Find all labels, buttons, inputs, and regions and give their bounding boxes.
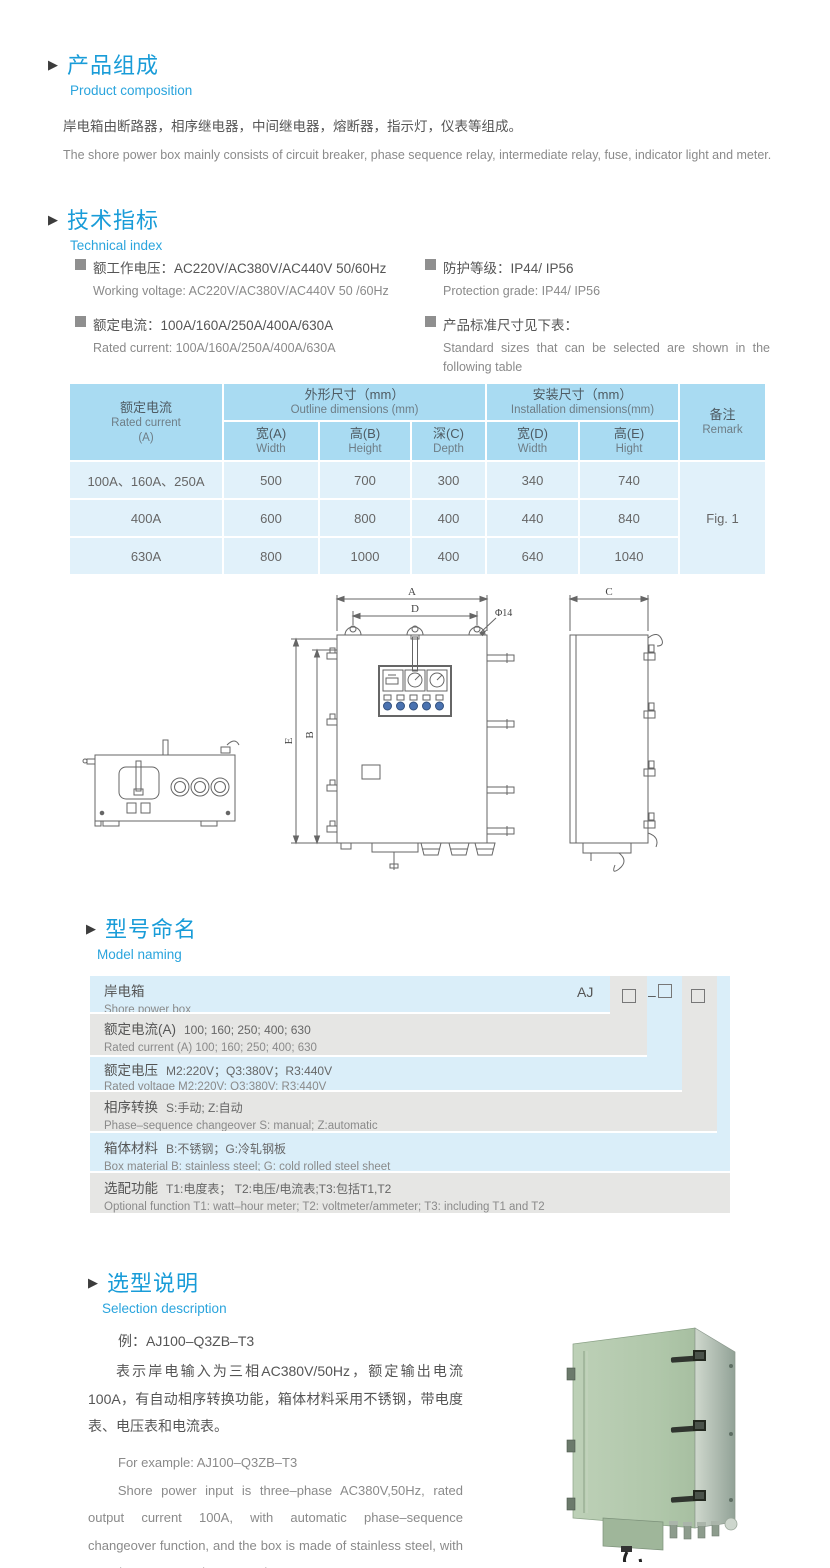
table-row: 100A、160A、250A 500 700 300 340 740 Fig. … <box>69 461 766 499</box>
selection-example-en: For example: AJ100–Q3ZB–T3 <box>118 1450 463 1476</box>
cell-depth: 300 <box>411 461 486 499</box>
section-header: ▶ 型号命名 <box>86 912 746 944</box>
section-arrow-icon: ▶ <box>48 213 58 226</box>
th-en: Outline dimensions (mm) <box>226 403 483 418</box>
section-header: ▶ 产品组成 <box>48 48 798 80</box>
section-title-cn: 型号命名 <box>105 912 197 944</box>
th-cn: 宽(A) <box>226 425 316 442</box>
naming-label-cn: 相序转换 <box>104 1100 158 1115</box>
spec-en-text: Rated current: 100A/160A/250A/400A/630A <box>93 339 405 358</box>
naming-value-cn: B:不锈钢；G:冷轧钢板 <box>166 1142 286 1156</box>
naming-row-rated-current: 额定电流(A)100; 160; 250; 400; 630 Rated cur… <box>90 1014 647 1055</box>
spec-protection-grade: 防护等级：IP44/ IP56 Protection grade: IP44/ … <box>425 257 770 301</box>
th-unit: (A) <box>72 431 220 446</box>
cell-depth: 400 <box>411 537 486 575</box>
spec-cn-text: 额定电流：100A/160A/250A/400A/630A <box>93 314 333 334</box>
bottom-view-drawing <box>83 740 239 826</box>
cell-current: 100A、160A、250A <box>69 461 223 499</box>
composition-body-en: The shore power box mainly consists of c… <box>63 148 798 162</box>
product-photo-svg <box>545 1302 810 1562</box>
naming-label-cn: 选配功能 <box>104 1181 158 1196</box>
spec-cn-line: 额定电流：100A/160A/250A/400A/630A <box>75 314 405 334</box>
th-cn: 高(B) <box>322 425 408 442</box>
section-arrow-icon: ▶ <box>88 1276 98 1289</box>
naming-row-rated-voltage: 额定电压M2:220V；Q3:380V；R3:440V Rated voltag… <box>90 1057 682 1090</box>
model-naming-diagram: AJ – 岸电箱 Shore power box 额定电流(A)100; 160… <box>90 976 730 1213</box>
th-height-e: 高(E) Hight <box>579 421 679 461</box>
dim-label-c: C <box>605 586 612 598</box>
naming-label-cn: 岸电箱 <box>104 984 145 999</box>
code-box-icon <box>658 984 672 998</box>
th-cn: 深(C) <box>414 425 483 442</box>
th-depth-c: 深(C) Depth <box>411 421 486 461</box>
section-technical-index: ▶ 技术指标 Technical index 额工作电压：AC220V/AC38… <box>48 203 798 253</box>
dim-label-a: A <box>408 586 416 598</box>
th-cn: 宽(D) <box>489 425 576 442</box>
th-en: Installation dimensions(mm) <box>489 403 676 418</box>
code-box-icon <box>691 989 705 1003</box>
naming-label-en: Phase–sequence changeover S: manual; Z:a… <box>104 1119 717 1131</box>
cell-height: 800 <box>319 499 411 537</box>
code-dash: – <box>648 987 656 1003</box>
spec-cn-line: 额工作电压：AC220V/AC380V/AC440V 50/60Hz <box>75 257 405 277</box>
spec-cn-text: 防护等级：IP44/ IP56 <box>443 257 574 277</box>
spec-working-voltage: 额工作电压：AC220V/AC380V/AC440V 50/60Hz Worki… <box>75 257 405 301</box>
spec-column-right: 防护等级：IP44/ IP56 Protection grade: IP44/ … <box>425 257 770 390</box>
selection-example-cn: 例：AJ100–Q3ZB–T3 <box>118 1328 463 1355</box>
th-remark: 备注 Remark <box>679 383 766 461</box>
selection-desc-en: Shore power input is three–phase AC380V,… <box>88 1477 463 1568</box>
section-title-en: Product composition <box>70 83 798 98</box>
cell-depth: 400 <box>411 499 486 537</box>
spec-column-left: 额工作电压：AC220V/AC380V/AC440V 50/60Hz Worki… <box>75 257 405 371</box>
th-rated-current: 额定电流 Rated current (A) <box>69 383 223 461</box>
cell-iwidth: 340 <box>486 461 579 499</box>
spec-cn-text: 额工作电压：AC220V/AC380V/AC440V 50/60Hz <box>93 257 386 277</box>
cell-width: 600 <box>223 499 319 537</box>
th-en: Width <box>226 442 316 457</box>
naming-label-en: Optional function T1: watt–hour meter; T… <box>104 1200 730 1213</box>
bottom-hook <box>624 1552 640 1562</box>
side-view-drawing <box>570 595 662 871</box>
cell-iheight: 840 <box>579 499 679 537</box>
model-code-prefix: AJ <box>577 984 593 1000</box>
section-title-en: Technical index <box>70 238 798 253</box>
enclosure-box-drawing <box>567 1328 737 1562</box>
section-title-cn: 技术指标 <box>67 203 159 235</box>
naming-row-optional-function: 选配功能T1:电度表； T2:电压/电流表;T3:包括T1,T2 Optiona… <box>90 1173 730 1213</box>
section-title-en: Selection description <box>102 1301 463 1316</box>
th-width-d: 宽(D) Width <box>486 421 579 461</box>
dim-label-b: B <box>304 731 316 738</box>
naming-label-cn: 额定电压 <box>104 1063 158 1078</box>
cell-iheight: 740 <box>579 461 679 499</box>
size-table-wrap: 额定电流 Rated current (A) 外形尺寸（mm） Outline … <box>68 382 767 576</box>
naming-label-en: Box material B: stainless steel; G: cold… <box>104 1160 730 1171</box>
th-en: Remark <box>682 423 763 438</box>
th-en: Height <box>322 442 408 457</box>
section-title-cn: 产品组成 <box>67 48 159 80</box>
spec-en-text: Standard sizes that can be selected are … <box>443 339 770 377</box>
th-cn: 外形尺寸（mm） <box>226 386 483 403</box>
cell-remark: Fig. 1 <box>679 461 766 575</box>
spec-en-text: Working voltage: AC220V/AC380V/AC440V 50… <box>93 282 405 301</box>
th-cn: 备注 <box>682 406 763 423</box>
cell-iwidth: 640 <box>486 537 579 575</box>
th-en: Width <box>489 442 576 457</box>
section-model-naming: ▶ 型号命名 Model naming AJ – 岸电箱 Shore power… <box>86 912 746 1215</box>
naming-label-cn: 箱体材料 <box>104 1141 158 1156</box>
th-cn: 高(E) <box>582 425 676 442</box>
drawing-svg: A D Φ14 E B C <box>75 583 755 893</box>
table-row: 630A 800 1000 400 640 1040 <box>69 537 766 575</box>
product-photo <box>545 1302 810 1567</box>
th-en: Depth <box>414 442 483 457</box>
model-code-slot-1 <box>622 987 636 1003</box>
hole-diameter-label: Φ14 <box>495 608 512 619</box>
naming-row-phase-sequence: 相序转换S:手动; Z:自动 Phase–sequence changeover… <box>90 1092 717 1131</box>
naming-row-shore-power-box: 岸电箱 Shore power box <box>90 976 610 1012</box>
dim-label-d: D <box>411 603 419 615</box>
th-outline-dimensions: 外形尺寸（mm） Outline dimensions (mm) <box>223 383 486 421</box>
composition-body-cn: 岸电箱由断路器，相序继电器，中间继电器，熔断器，指示灯，仪表等组成。 <box>63 115 798 135</box>
spec-cn-text: 产品标准尺寸见下表： <box>443 314 578 334</box>
front-view-drawing <box>291 595 514 870</box>
section-arrow-icon: ▶ <box>48 58 58 71</box>
section-title-cn: 选型说明 <box>107 1266 199 1298</box>
naming-label-en: Rated voltage M2:220V; Q3:380V; R3:440V <box>104 1080 682 1090</box>
spec-rated-current: 额定电流：100A/160A/250A/400A/630A Rated curr… <box>75 314 405 358</box>
code-box-icon <box>622 989 636 1003</box>
technical-drawings: A D Φ14 E B C <box>75 583 755 898</box>
th-height-b: 高(B) Height <box>319 421 411 461</box>
section-header: ▶ 技术指标 <box>48 203 798 235</box>
th-width-a: 宽(A) Width <box>223 421 319 461</box>
table-row: 400A 600 800 400 440 840 <box>69 499 766 537</box>
bullet-square-icon <box>425 316 436 327</box>
cell-height: 1000 <box>319 537 411 575</box>
th-install-dimensions: 安装尺寸（mm） Installation dimensions(mm) <box>486 383 679 421</box>
naming-value-cn: 100; 160; 250; 400; 630 <box>184 1023 311 1037</box>
spec-cn-line: 防护等级：IP44/ IP56 <box>425 257 770 277</box>
selection-desc-cn: 表示岸电输入为三相AC380V/50Hz，额定输出电流100A，有自动相序转换功… <box>88 1358 463 1441</box>
th-en: Hight <box>582 442 676 457</box>
naming-value-cn: T1:电度表； T2:电压/电流表;T3:包括T1,T2 <box>166 1182 391 1196</box>
spec-cn-line: 产品标准尺寸见下表： <box>425 314 770 334</box>
cell-iheight: 1040 <box>579 537 679 575</box>
bullet-square-icon <box>75 316 86 327</box>
naming-value-cn: M2:220V；Q3:380V；R3:440V <box>166 1064 332 1078</box>
section-product-composition: ▶ 产品组成 Product composition 岸电箱由断路器，相序继电器… <box>48 48 798 162</box>
section-arrow-icon: ▶ <box>86 922 96 935</box>
meter-panel-drawing <box>379 666 451 716</box>
model-code-slot-3 <box>691 987 705 1003</box>
cell-width: 500 <box>223 461 319 499</box>
size-table: 额定电流 Rated current (A) 外形尺寸（mm） Outline … <box>68 382 767 576</box>
spec-standard-sizes: 产品标准尺寸见下表： Standard sizes that can be se… <box>425 314 770 377</box>
bullet-square-icon <box>75 259 86 270</box>
section-selection-description: ▶ 选型说明 Selection description 例：AJ100–Q3Z… <box>88 1266 463 1568</box>
naming-row-box-material: 箱体材料B:不锈钢；G:冷轧钢板 Box material B: stainle… <box>90 1133 730 1171</box>
bullet-square-icon <box>425 259 436 270</box>
cell-width: 800 <box>223 537 319 575</box>
model-code-slot-2: – <box>648 984 672 1003</box>
bottom-bracket <box>603 1518 663 1550</box>
naming-label-en: Shore power box <box>104 1003 610 1012</box>
th-cn: 额定电流 <box>72 399 220 416</box>
section-title-en: Model naming <box>97 947 746 962</box>
naming-label-cn: 额定电流(A) <box>104 1022 176 1037</box>
cell-current: 630A <box>69 537 223 575</box>
spec-en-text: Protection grade: IP44/ IP56 <box>443 282 770 301</box>
th-cn: 安装尺寸（mm） <box>489 386 676 403</box>
naming-label-en: Rated current (A) 100; 160; 250; 400; 63… <box>104 1041 647 1055</box>
cell-iwidth: 440 <box>486 499 579 537</box>
dim-label-e: E <box>283 737 295 744</box>
naming-value-cn: S:手动; Z:自动 <box>166 1101 243 1115</box>
cell-current: 400A <box>69 499 223 537</box>
cell-height: 700 <box>319 461 411 499</box>
section-header: ▶ 选型说明 <box>88 1266 463 1298</box>
th-en: Rated current <box>72 416 220 431</box>
catalog-page: ▶ 产品组成 Product composition 岸电箱由断路器，相序继电器… <box>0 0 830 1568</box>
